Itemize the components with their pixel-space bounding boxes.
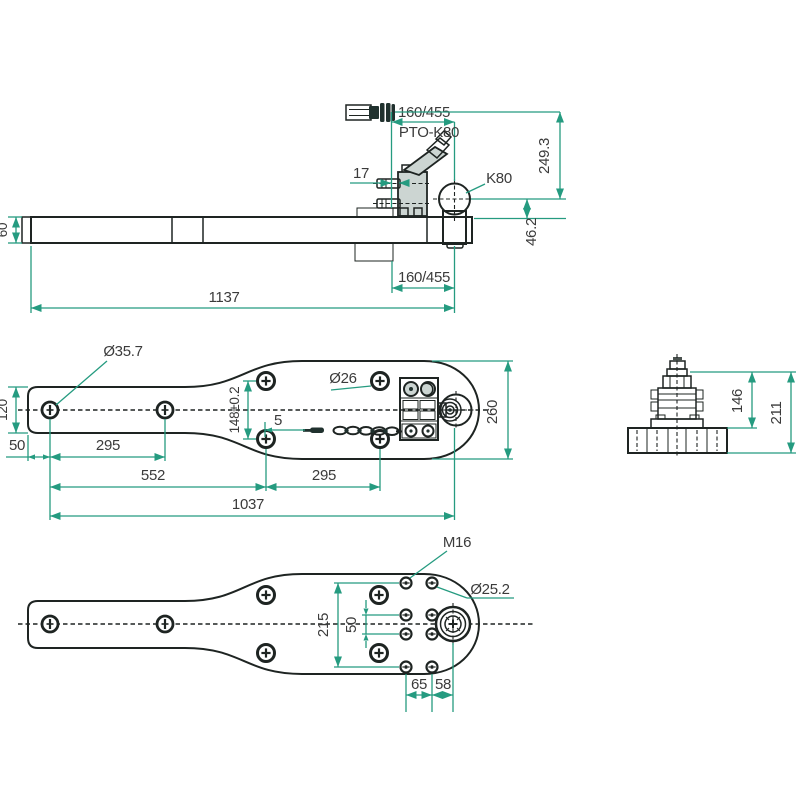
bolt-hole-bv-right-top [371,587,388,604]
dim-26: Ø26 [329,370,356,387]
dim-65: 65 [411,676,427,693]
dim-1037: 1037 [232,496,264,513]
technical-drawing-page: 160/455 PTO-K80 249.3 46.2 17 K80 160/45… [0,0,800,800]
hole-26-top [372,373,389,390]
bolt-hole-bv-right-bottom [371,645,388,662]
label-pto-k80: PTO-K80 [399,124,459,141]
dim-25-2: Ø25.2 [470,581,509,598]
bolt-hole-left-bottom [258,431,275,448]
hole-35-7-front [42,402,58,418]
dim-50-bottom-view: 50 [343,617,360,633]
drawbar-dimension-drawing: 160/455 PTO-K80 249.3 46.2 17 K80 160/45… [0,0,800,800]
dim-260: 260 [484,400,501,424]
bottom-view: M16 Ø25.2 215 50 65 58 [18,534,535,712]
dim-295-left: 295 [96,437,120,454]
mount-section-hatch-lower [355,244,393,262]
dim-211: 211 [768,401,785,424]
label-m16: M16 [443,534,471,551]
dim-215: 215 [315,613,332,637]
dim-148: 148±0.2 [227,387,242,434]
dim-60: 60 [0,223,10,237]
dim-160-455-bottom: 160/455 [398,269,450,286]
side-view: 160/455 PTO-K80 249.3 46.2 17 K80 160/45… [0,103,566,313]
dim-17: 17 [353,165,369,182]
m16-hole-pattern [401,578,438,673]
coupling-plate [400,378,478,440]
pto-shaft-icon [346,103,395,122]
dim-35-7: Ø35.7 [103,343,142,360]
k80-ball [433,179,476,221]
dim-249-3: 249.3 [536,138,553,174]
ball-mount-hole [436,603,470,645]
dim-146: 146 [729,389,746,413]
dim-58: 58 [435,676,451,693]
dim-5: 5 [274,412,282,429]
label-k80: K80 [486,170,512,187]
dim-46-2: 46.2 [523,218,540,246]
drawbar-beam-side [22,217,472,243]
dim-552: 552 [141,467,165,484]
dim-295-right: 295 [312,467,336,484]
dim-1137: 1137 [208,289,239,306]
bolt-hole-left-top [258,373,275,390]
safety-chain [303,427,402,435]
side-view-dimensions: 160/455 PTO-K80 249.3 46.2 17 K80 160/45… [0,104,566,313]
top-view: Ø35.7 120 50 295 552 295 1037 [0,343,513,520]
bolt-hole-bv-left-top [258,587,275,604]
dim-120: 120 [0,399,10,421]
end-view-dimensions: 146 211 [690,372,796,453]
bottom-view-dimensions: M16 Ø25.2 215 50 65 58 [315,534,514,712]
bolt-hole-bv-left-bottom [258,645,275,662]
hole-second-bottom-view [157,616,173,632]
end-view: 146 211 [628,354,796,457]
coupling-tower-end [651,354,703,457]
hole-35-7-second [157,402,173,418]
dim-50-top-view: 50 [9,437,25,454]
hole-front-bottom-view [42,616,58,632]
